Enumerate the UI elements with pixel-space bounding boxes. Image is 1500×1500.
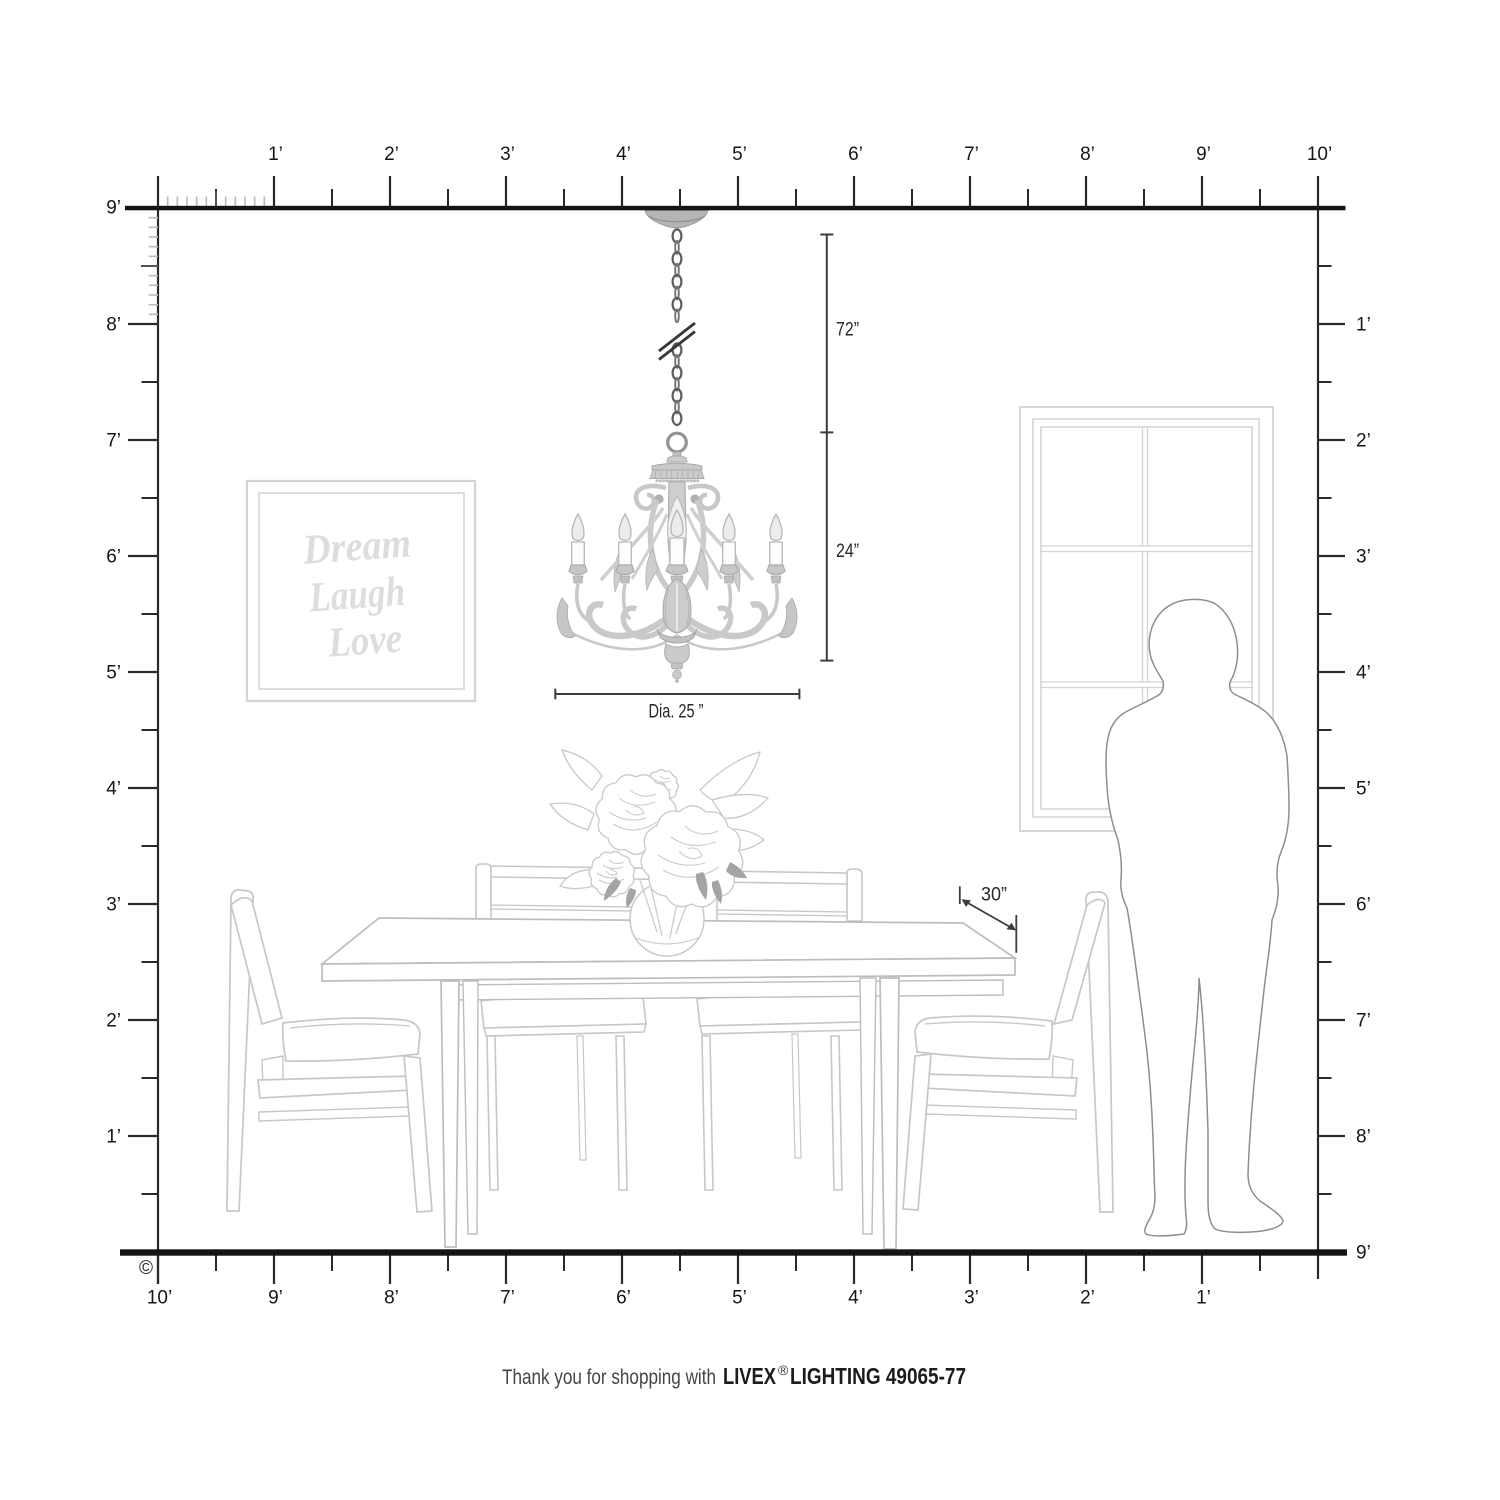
svg-text:2’: 2’ (1080, 1288, 1095, 1309)
svg-text:7’: 7’ (964, 144, 979, 165)
svg-text:6’: 6’ (106, 547, 121, 568)
svg-text:©: © (139, 1258, 153, 1279)
svg-text:Thank you for shopping with: Thank you for shopping with (502, 1365, 716, 1389)
svg-text:6’: 6’ (1356, 895, 1371, 916)
svg-text:3’: 3’ (1356, 547, 1371, 568)
svg-text:9’: 9’ (1356, 1243, 1371, 1264)
svg-text:4’: 4’ (616, 144, 631, 165)
svg-text:8’: 8’ (1080, 144, 1095, 165)
svg-text:10’: 10’ (1307, 144, 1332, 165)
svg-text:2’: 2’ (1356, 431, 1371, 452)
svg-text:4’: 4’ (848, 1288, 863, 1309)
svg-text:1’: 1’ (1356, 315, 1371, 336)
svg-text:7’: 7’ (500, 1288, 515, 1309)
svg-text:5’: 5’ (106, 663, 121, 684)
svg-text:2’: 2’ (106, 1011, 121, 1032)
svg-text:7’: 7’ (1356, 1011, 1371, 1032)
svg-text:4’: 4’ (106, 779, 121, 800)
svg-text:7’: 7’ (106, 431, 121, 452)
svg-text:24”: 24” (836, 541, 859, 562)
svg-text:4’: 4’ (1356, 663, 1371, 684)
svg-text:9’: 9’ (106, 198, 121, 219)
svg-text:10’: 10’ (147, 1288, 172, 1309)
svg-text:3’: 3’ (500, 144, 515, 165)
svg-text:9’: 9’ (1196, 144, 1211, 165)
svg-text:5’: 5’ (732, 144, 747, 165)
svg-text:6’: 6’ (848, 144, 863, 165)
svg-text:8’: 8’ (106, 315, 121, 336)
svg-text:LIGHTING 49065-77: LIGHTING 49065-77 (790, 1363, 966, 1389)
svg-text:3’: 3’ (106, 895, 121, 916)
svg-text:6’: 6’ (616, 1288, 631, 1309)
svg-text:LIVEX: LIVEX (723, 1363, 777, 1389)
svg-text:Dream: Dream (301, 520, 413, 573)
svg-text:1’: 1’ (268, 144, 283, 165)
svg-text:72”: 72” (836, 320, 859, 341)
svg-text:Laugh: Laugh (307, 569, 407, 622)
svg-text:Love: Love (326, 616, 404, 667)
svg-text:Dia. 25 ”: Dia. 25 ” (649, 702, 704, 723)
svg-text:3’: 3’ (964, 1288, 979, 1309)
svg-text:30”: 30” (981, 883, 1007, 905)
svg-text:8’: 8’ (1356, 1127, 1371, 1148)
svg-text:2’: 2’ (384, 144, 399, 165)
svg-text:1’: 1’ (1196, 1288, 1211, 1309)
svg-text:1’: 1’ (106, 1127, 121, 1148)
svg-text:8’: 8’ (384, 1288, 399, 1309)
svg-text:®: ® (778, 1362, 789, 1378)
svg-text:9’: 9’ (268, 1288, 283, 1309)
svg-text:5’: 5’ (732, 1288, 747, 1309)
svg-text:5’: 5’ (1356, 779, 1371, 800)
